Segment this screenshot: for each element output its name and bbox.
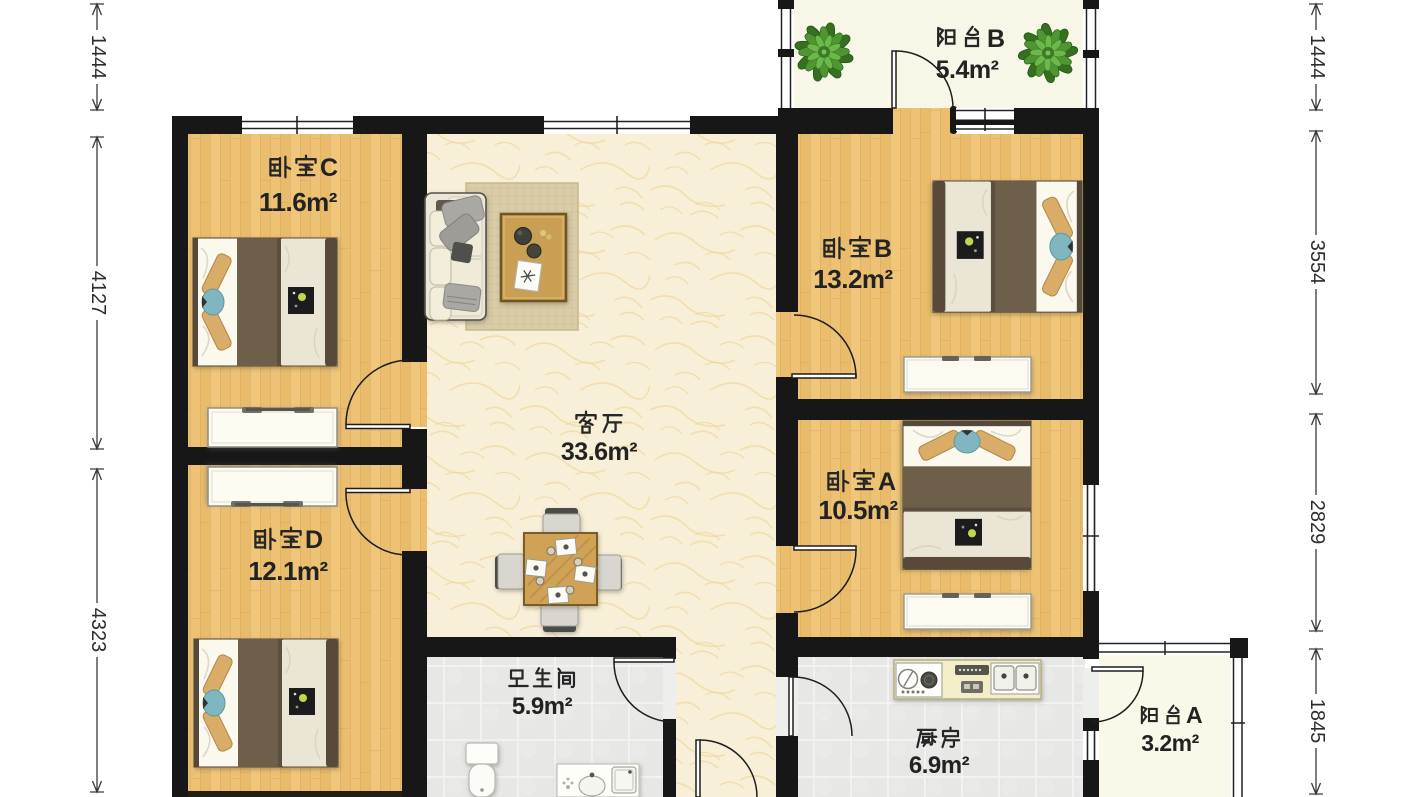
svg-text:13.2m²: 13.2m² — [813, 264, 893, 294]
svg-text:12.1m²: 12.1m² — [248, 556, 328, 586]
svg-text:33.6m²: 33.6m² — [561, 438, 637, 466]
svg-text:1444: 1444 — [1306, 35, 1328, 80]
svg-text:5.4m²: 5.4m² — [936, 56, 999, 84]
svg-text:10.5m²: 10.5m² — [818, 495, 898, 525]
svg-text:A: A — [1186, 702, 1202, 728]
svg-text:11.6m²: 11.6m² — [259, 187, 338, 217]
svg-text:D: D — [305, 526, 323, 554]
svg-text:A: A — [878, 468, 896, 496]
svg-text:3554: 3554 — [1306, 240, 1328, 285]
svg-text:6.9m²: 6.9m² — [909, 752, 970, 779]
svg-text:4323: 4323 — [87, 608, 109, 653]
svg-text:2829: 2829 — [1306, 500, 1328, 545]
svg-text:1845: 1845 — [1306, 699, 1328, 744]
svg-text:B: B — [987, 25, 1005, 53]
svg-text:C: C — [320, 154, 338, 182]
svg-text:B: B — [874, 235, 892, 263]
svg-text:5.9m²: 5.9m² — [512, 693, 573, 720]
svg-text:3.2m²: 3.2m² — [1141, 730, 1199, 756]
svg-text:4127: 4127 — [87, 271, 109, 316]
svg-text:1444: 1444 — [87, 35, 109, 80]
